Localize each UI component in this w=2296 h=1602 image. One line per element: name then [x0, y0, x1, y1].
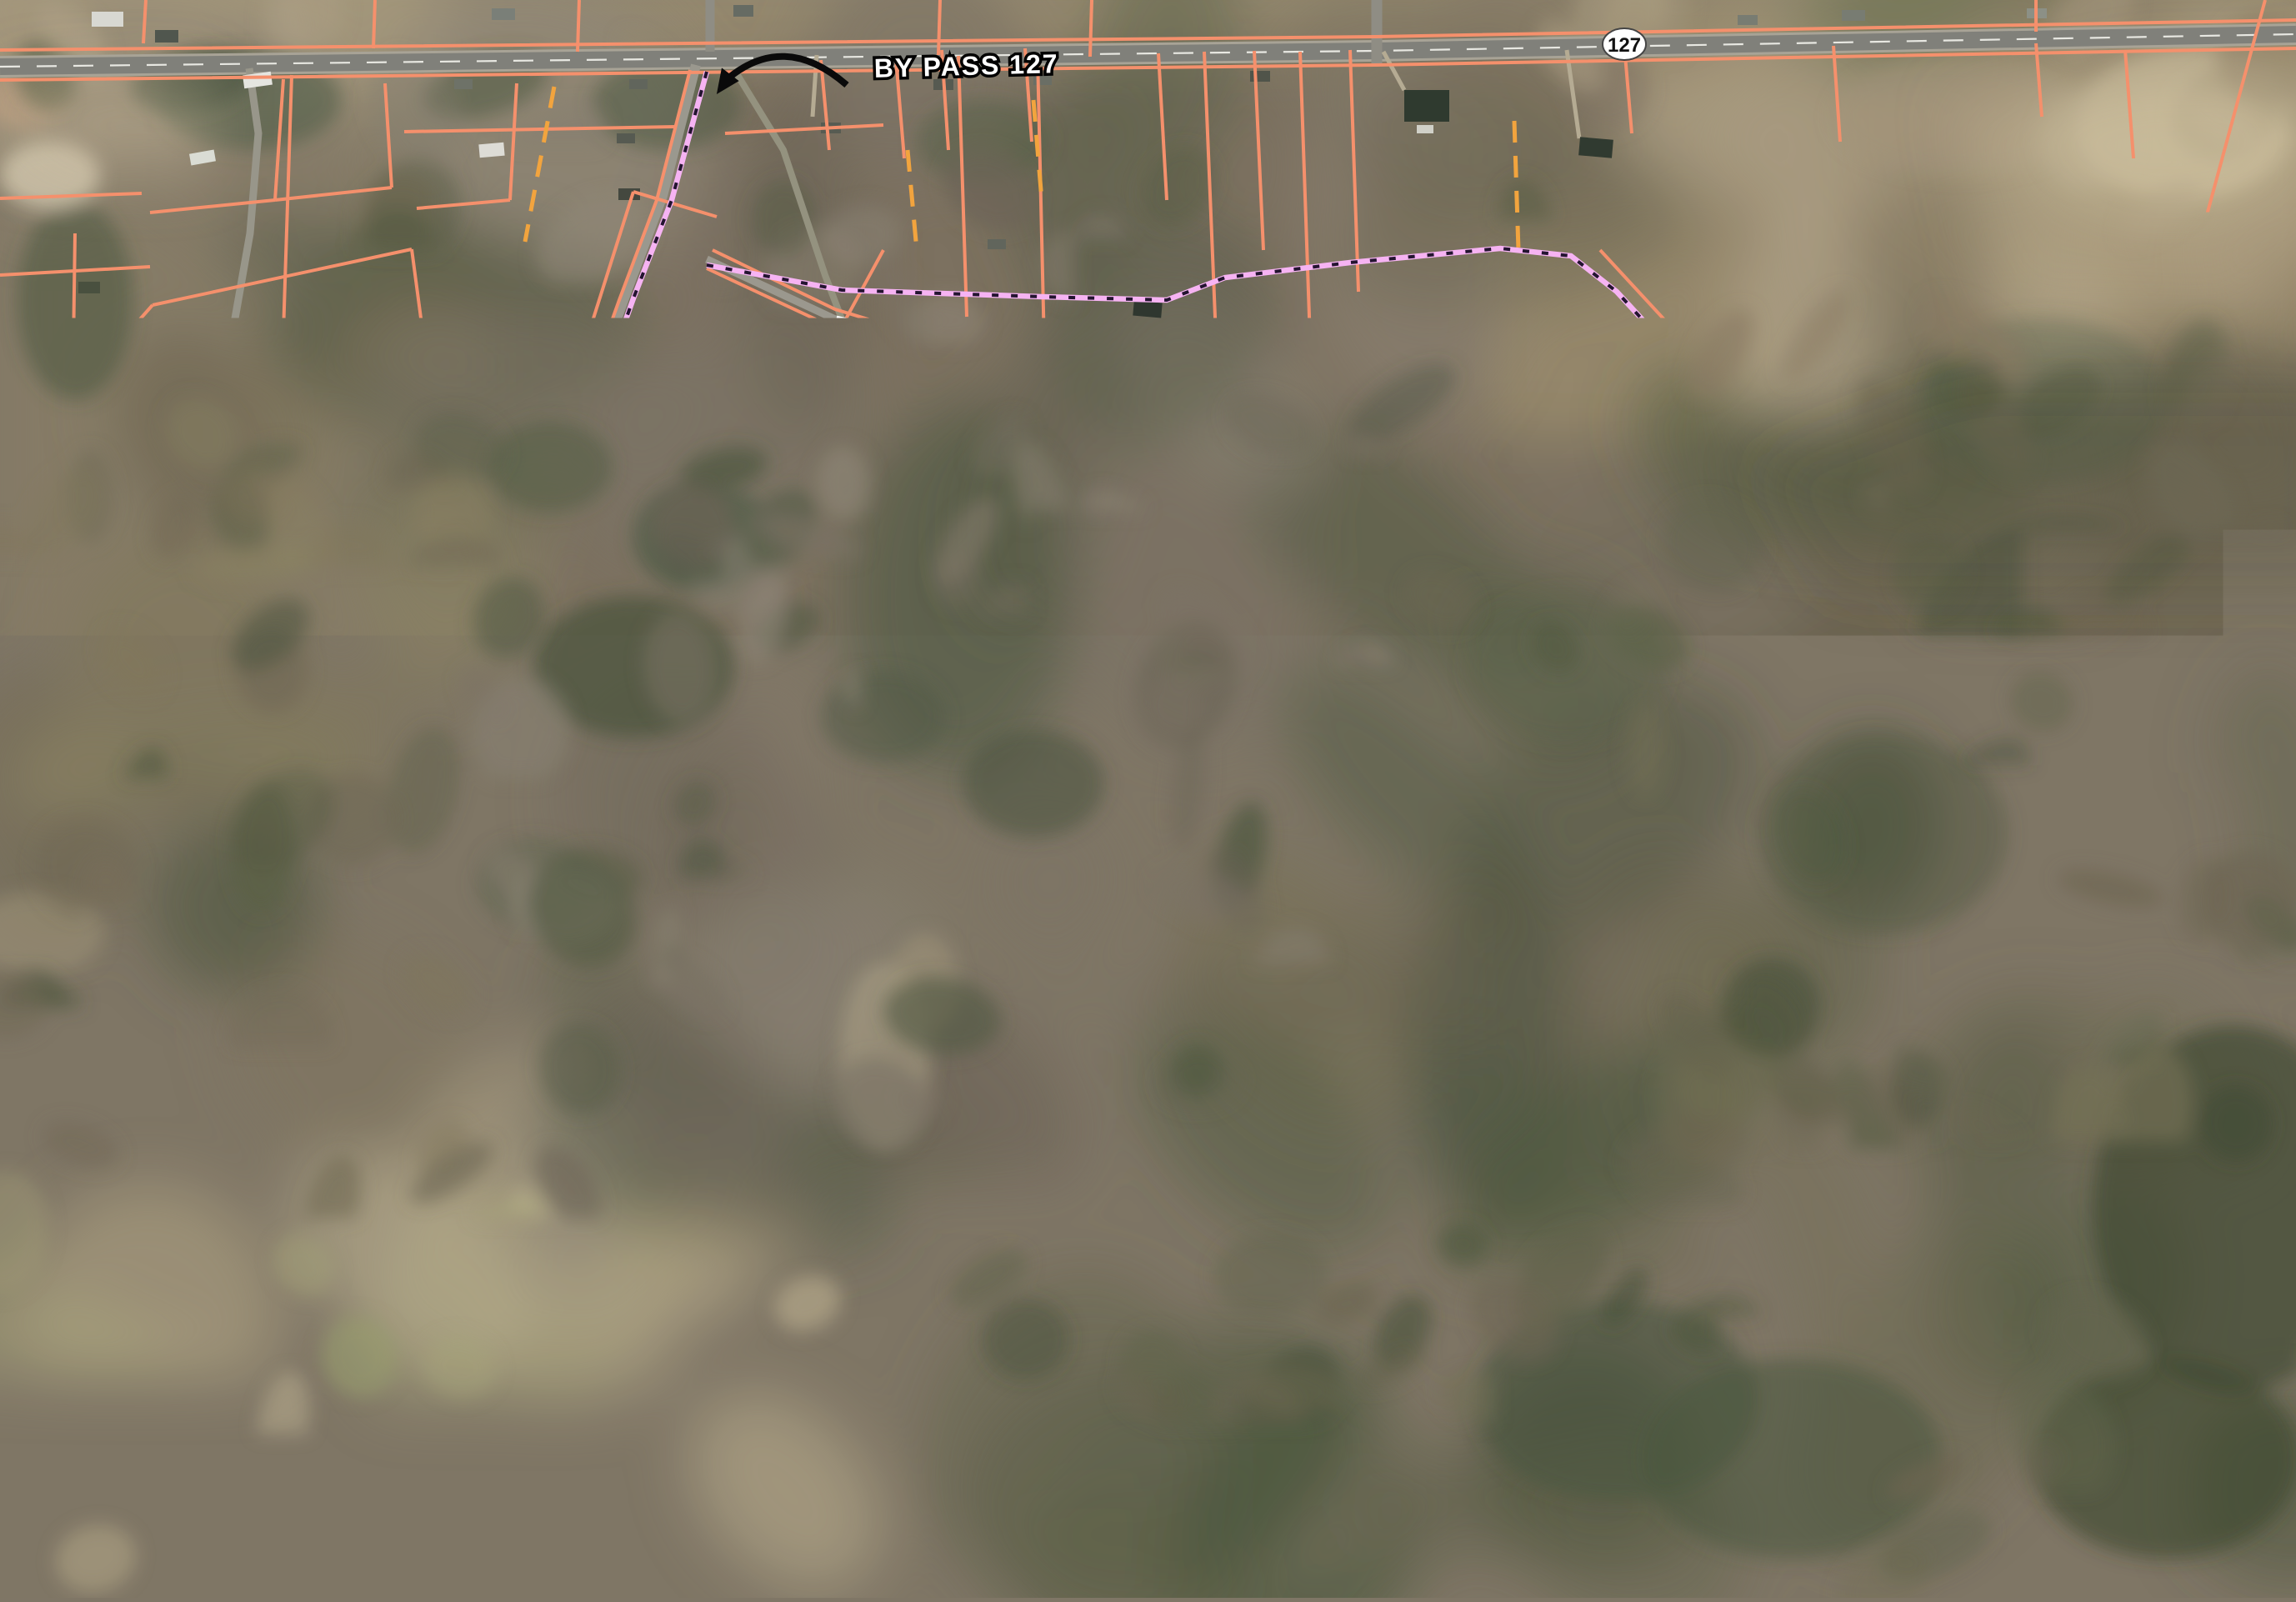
svg-text:BY PASS 127: BY PASS 127: [873, 48, 1059, 83]
svg-text:1: 1: [955, 583, 977, 627]
svg-text:TM: TM: [80, 1564, 91, 1572]
svg-text:127: 127: [1608, 34, 1641, 57]
svg-text:3: 3: [1154, 547, 1176, 590]
svg-text:4: 4: [1060, 881, 1082, 924]
svg-text:2: 2: [917, 712, 938, 755]
svg-text:5: 5: [1522, 612, 1543, 655]
